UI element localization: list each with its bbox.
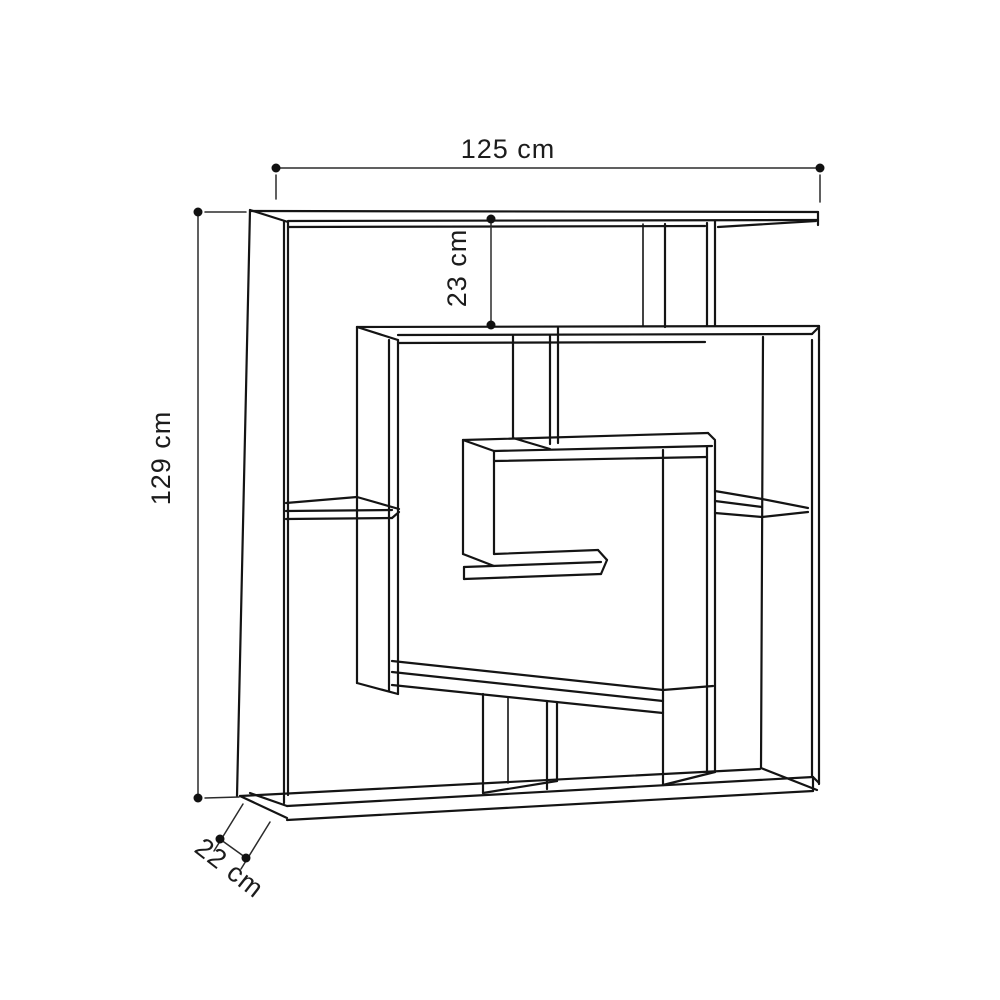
spiral-bottom-shelf [464,550,607,579]
spiral-left-wall [463,440,494,566]
left-stub-shelf [286,497,399,519]
dimension-endpoint-dot [272,164,281,173]
bookshelf-drawing [237,210,819,820]
right-side-panel [761,337,819,790]
dimension-top-section: 23 cm [442,215,496,330]
spiral-top-shelf [463,433,715,461]
dimension-depth: 22 cm [189,804,270,904]
top-shelf [250,211,818,227]
dimension-endpoint-dot [194,208,203,217]
left-side-panel [237,210,288,803]
upper-right-divider [643,221,715,327]
width-dimension-label: 125 cm [461,134,556,164]
top-section-dimension-label: 23 cm [442,229,472,308]
dimension-drawing-page: 125 cm 129 cm 23 cm 22 cm [0,0,1000,1000]
middle-frame-bottom-shelf [392,661,713,713]
bookshelf-diagram: 125 cm 129 cm 23 cm 22 cm [0,0,1000,1000]
second-shelf [357,326,819,343]
dimension-endpoint-dot [487,215,496,224]
dimension-width: 125 cm [272,134,825,202]
dimension-endpoint-dot [487,321,496,330]
bottom-shelf [240,769,819,820]
bottom-center-divider [483,694,557,793]
height-dimension-label: 129 cm [146,411,176,506]
spiral-upper-divider [513,328,558,449]
dimension-height: 129 cm [146,208,246,803]
inner-right-divider [663,441,715,785]
dimension-endpoint-dot [194,794,203,803]
dimension-endpoint-dot [816,164,825,173]
